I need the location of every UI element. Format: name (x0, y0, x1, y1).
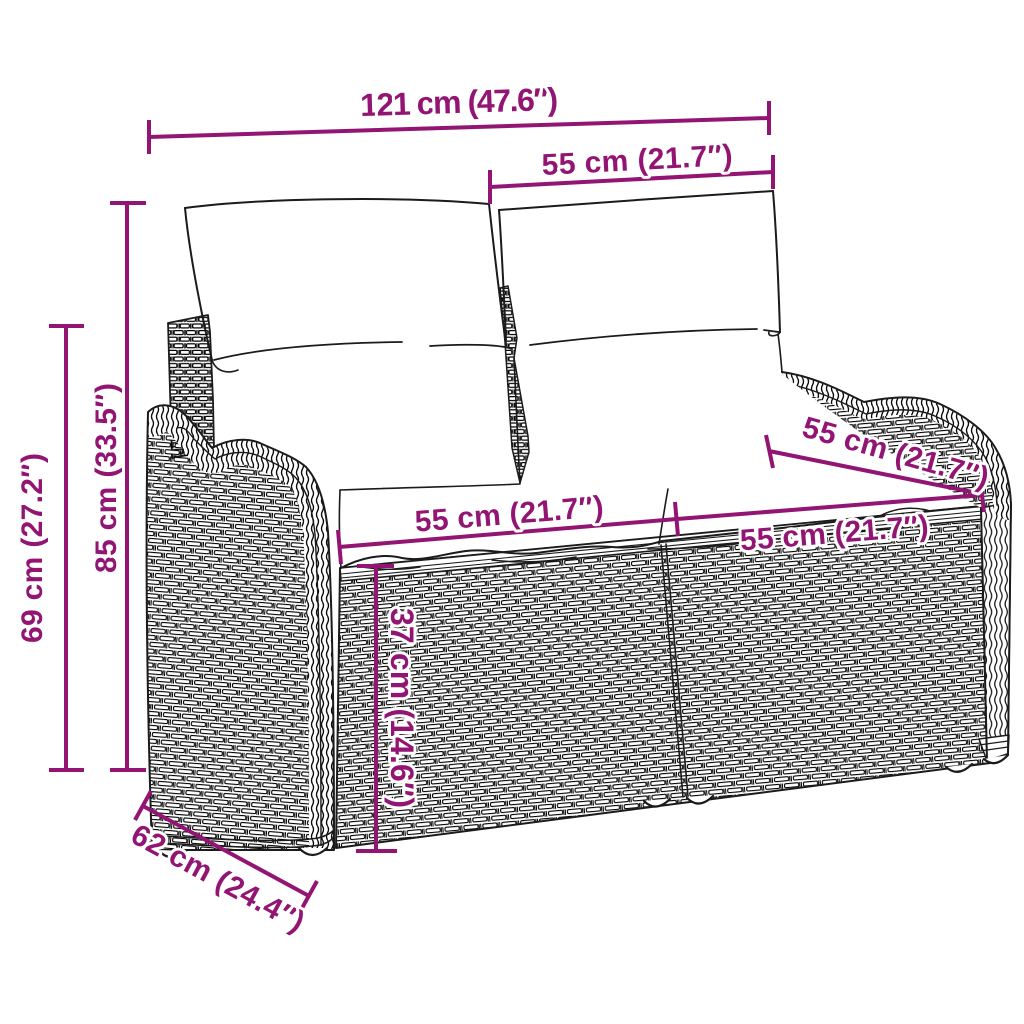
svg-text:121 cm (47.6″): 121 cm (47.6″) (360, 81, 559, 123)
svg-text:69 cm (27.2″): 69 cm (27.2″) (16, 453, 49, 643)
svg-text:85 cm (33.5″): 85 cm (33.5″) (90, 383, 123, 573)
svg-text:37 cm (14.6″): 37 cm (14.6″) (384, 608, 420, 808)
